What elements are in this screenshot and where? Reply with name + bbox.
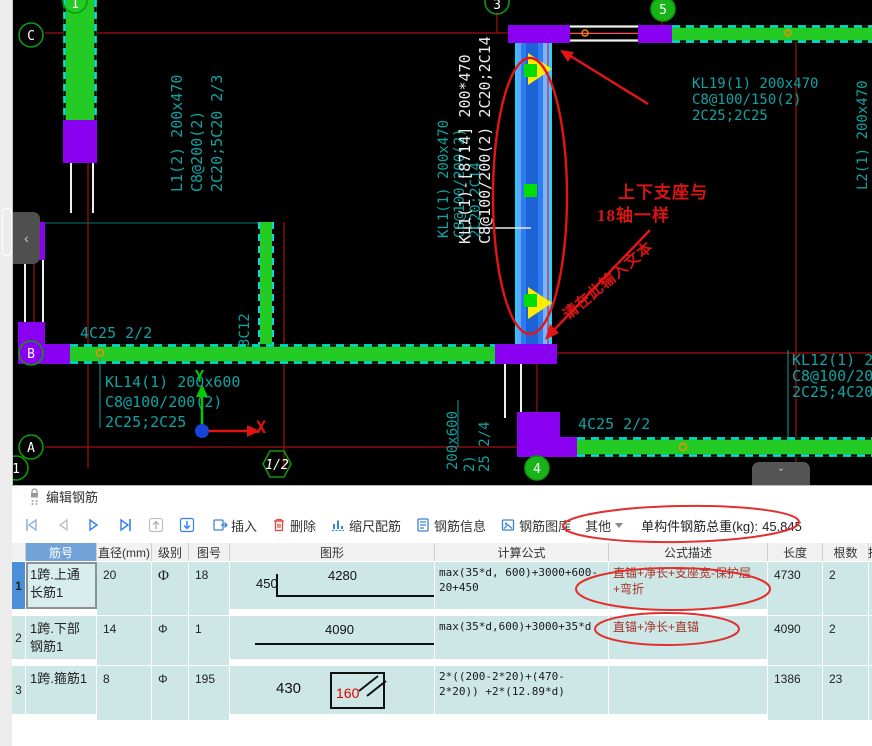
application-window: { "drawing": { "bubbles": {"c":"C","b":"…: [0, 0, 872, 746]
beam-label-kl14-line1: KL14(1) 200x600: [105, 373, 240, 391]
length-cell[interactable]: 4090: [768, 616, 823, 665]
other-dropdown[interactable]: 其他: [585, 516, 623, 535]
rebar-table: 筋号 直径(mm) 级别 图号 图形 计算公式 公式描述 长度 根数 搭 1 1…: [12, 543, 872, 720]
beam-label-b-4c25: 4C25 2/2: [80, 324, 152, 342]
count-cell[interactable]: 2: [823, 616, 869, 665]
bar-scale-icon: [330, 517, 346, 533]
total-weight-label: 单构件钢筋总重(kg):: [641, 519, 758, 534]
ucs-y-label: Y: [195, 367, 204, 385]
header-rownum: [12, 543, 26, 561]
rownum-cell[interactable]: 1: [12, 562, 26, 609]
nav-last-button[interactable]: [117, 517, 136, 533]
collapse-bottom-tab[interactable]: ˇ: [752, 462, 810, 485]
shape-dim-main: 4280: [328, 568, 357, 583]
bubble-4: 4: [533, 462, 541, 477]
header-name[interactable]: 筋号: [26, 543, 97, 561]
panel-title: 编辑钢筋: [46, 487, 98, 506]
name-cell[interactable]: 1跨.箍筋1: [26, 666, 97, 714]
beam-label-l2: L2(1) 200x470: [855, 80, 871, 190]
panel-toolbar: 插入 删除 缩尺配筋 钢筋信息 钢筋图库 其他 单构件钢筋总重(kg):45.8…: [12, 507, 872, 544]
table-row[interactable]: 2 1跨.下部钢筋1 14 Φ 1 4090 max(35*d,600)+300…: [12, 616, 872, 665]
length-cell[interactable]: 4730: [768, 562, 823, 615]
move-up-button[interactable]: [148, 517, 167, 533]
bubble-3: 3: [493, 0, 501, 13]
grip-middle[interactable]: [524, 184, 537, 197]
pic-no-cell[interactable]: 1: [189, 616, 230, 665]
chevron-down-icon: ˇ: [779, 466, 783, 481]
grip-bottom[interactable]: [524, 294, 537, 307]
bubble-5: 5: [659, 3, 667, 18]
insert-label: 插入: [231, 516, 257, 535]
pic-no-cell[interactable]: 18: [189, 562, 230, 615]
shape-cell[interactable]: 4090: [230, 616, 435, 659]
header-formula[interactable]: 计算公式: [435, 543, 609, 561]
annotation-note-line2: 18轴一样: [597, 201, 670, 226]
beam-label-l1-line3: 2C20;5C20 2/3: [208, 75, 226, 192]
header-count[interactable]: 根数: [823, 543, 869, 561]
bubble-a: A: [27, 441, 35, 456]
header-level[interactable]: 级别: [152, 543, 189, 561]
header-length[interactable]: 长度: [768, 543, 823, 561]
rebar-info-label: 钢筋信息: [434, 516, 486, 535]
shape-vertical-leg: [276, 574, 278, 595]
pic-no-cell[interactable]: 195: [189, 666, 230, 720]
name-cell[interactable]: 1跨.上通长筋1: [26, 562, 97, 609]
delete-label: 删除: [290, 516, 316, 535]
nav-next-button[interactable]: [86, 517, 105, 533]
rownum-cell[interactable]: 2: [12, 616, 26, 659]
diameter-cell[interactable]: 20: [97, 562, 152, 615]
svg-text:160: 160: [336, 685, 360, 701]
beam-b-axis[interactable]: [18, 344, 557, 364]
length-cell[interactable]: 1386: [768, 666, 823, 720]
edit-rebar-panel: 编辑钢筋 插入 删除 缩尺配筋 钢筋信息 钢筋图库 其他: [12, 485, 872, 746]
diameter-cell[interactable]: 8: [97, 666, 152, 720]
shape-dim-main: 4090: [325, 622, 354, 637]
nav-first-button[interactable]: [24, 517, 43, 533]
picture-library-icon: [500, 517, 516, 533]
formula-cell[interactable]: 2*((200-2*20)+(470-2*20)) +2*(12.89*d): [435, 666, 609, 714]
description-cell[interactable]: 直锚+净长+支座宽-保护层+弯折: [609, 562, 768, 609]
bubble-half: 1/2: [265, 458, 289, 473]
beam-label-a-4c25: 4C25 2/2: [578, 415, 650, 433]
description-cell[interactable]: [609, 666, 768, 714]
rownum-cell[interactable]: 3: [12, 666, 26, 714]
beam-label-kl19-line3: 2C25;2C25: [692, 108, 768, 124]
beam-kl1-selected[interactable]: [515, 42, 552, 344]
beam-label-kl14-line2: C8@100/200(2): [105, 393, 222, 411]
shape-cell[interactable]: 450 4280: [230, 562, 435, 609]
table-row[interactable]: 1 1跨.上通长筋1 20 Φ 18 450 4280 max(35*d, 60…: [12, 562, 872, 615]
gutter-handle[interactable]: [2, 208, 12, 256]
beam-label-kl14-line3: 2C25;2C25: [105, 413, 186, 431]
shape-dim-left: 430: [276, 680, 301, 697]
header-pic-no[interactable]: 图号: [189, 543, 230, 561]
beam-label-kl1-teal1: KL1(1) 200x470: [436, 120, 452, 238]
pin-lock-icon[interactable]: [28, 487, 42, 507]
count-cell[interactable]: 23: [823, 666, 869, 720]
total-weight-value: 45.845: [762, 519, 802, 534]
scale-rebar-label: 缩尺配筋: [349, 516, 401, 535]
name-cell[interactable]: 1跨.下部钢筋1: [26, 616, 97, 659]
diameter-cell[interactable]: 14: [97, 616, 152, 665]
beam-label-kl12-line3: 2C25;4C20: [792, 383, 872, 401]
shape-cell[interactable]: 430 160: [230, 666, 435, 714]
beam-label-kl19-line2: C8@100/150(2): [692, 92, 802, 108]
scale-rebar-button[interactable]: 缩尺配筋: [330, 516, 401, 535]
beam-label-dim2: 2): [462, 455, 478, 472]
caret-down-icon: [615, 523, 623, 528]
trash-icon: [271, 517, 287, 533]
bubble-1-bottom: 1: [12, 462, 20, 477]
annotation-note-line1: 上下支座与: [618, 178, 708, 203]
beam-label-3c12: 3C12: [237, 313, 253, 347]
bubble-b: B: [27, 347, 35, 362]
collapse-left-tab[interactable]: ‹: [13, 212, 40, 264]
rebar-library-label: 钢筋图库: [519, 516, 571, 535]
ucs-x-label: X: [256, 418, 266, 438]
table-header-row: 筋号 直径(mm) 级别 图号 图形 计算公式 公式描述 长度 根数 搭: [12, 543, 872, 561]
header-description[interactable]: 公式描述: [609, 543, 768, 561]
shape-horizontal-run: [255, 643, 435, 645]
grip-top[interactable]: [524, 64, 537, 77]
beam-c-axis[interactable]: [508, 25, 872, 43]
rebar-info-button[interactable]: 钢筋信息: [415, 516, 486, 535]
beam-label-dim1: 200x600: [445, 411, 461, 470]
header-diameter[interactable]: 直径(mm): [97, 543, 152, 561]
description-cell[interactable]: 直锚+净长+直锚: [609, 616, 768, 659]
bubble-1-top: 1: [71, 0, 79, 12]
level-cell[interactable]: Φ: [152, 616, 189, 665]
beam-label-l1-line1: L1(2) 200x470: [168, 75, 186, 192]
table-row[interactable]: 3 1跨.箍筋1 8 Φ 195 430 160 2*((200-2*20)+(…: [12, 666, 872, 720]
beam-label-kl19-line1: KL19(1) 200x470: [692, 76, 818, 92]
rebar-library-button[interactable]: 钢筋图库: [500, 516, 571, 535]
beam-label-l1-line2: C8@200(2): [188, 111, 206, 192]
insert-icon: [212, 517, 228, 533]
bubble-c: C: [27, 29, 35, 44]
stirrup-shape: 160: [328, 668, 392, 712]
other-label: 其他: [585, 516, 611, 535]
beam-label-kl1-white1: KL1(1)-[8714] 200*470: [456, 54, 474, 244]
insert-button[interactable]: 插入: [212, 516, 257, 535]
formula-cell[interactable]: max(35*d, 600)+3000+600-20+450: [435, 562, 609, 609]
level-cell[interactable]: Φ: [152, 562, 189, 615]
beam-label-dim3: 25 2/4: [477, 421, 493, 472]
shape-dim-left: 450: [256, 576, 278, 591]
move-down-button[interactable]: [179, 517, 198, 533]
level-cell[interactable]: Φ: [152, 666, 189, 720]
header-shape[interactable]: 图形: [230, 543, 435, 561]
count-cell[interactable]: 2: [823, 562, 869, 615]
total-weight: 单构件钢筋总重(kg):45.845: [641, 516, 802, 535]
chevron-left-icon: ‹: [24, 230, 29, 246]
delete-button[interactable]: 删除: [271, 516, 316, 535]
shape-horizontal-run: [276, 595, 435, 597]
document-info-icon: [415, 517, 431, 533]
beam-label-kl1-white2: C8@100/200(2) 2C20;2C14: [476, 36, 494, 244]
nav-prev-button[interactable]: [55, 517, 74, 533]
panel-titlebar[interactable]: 编辑钢筋: [12, 486, 872, 507]
formula-cell[interactable]: max(35*d,600)+3000+35*d: [435, 616, 609, 659]
